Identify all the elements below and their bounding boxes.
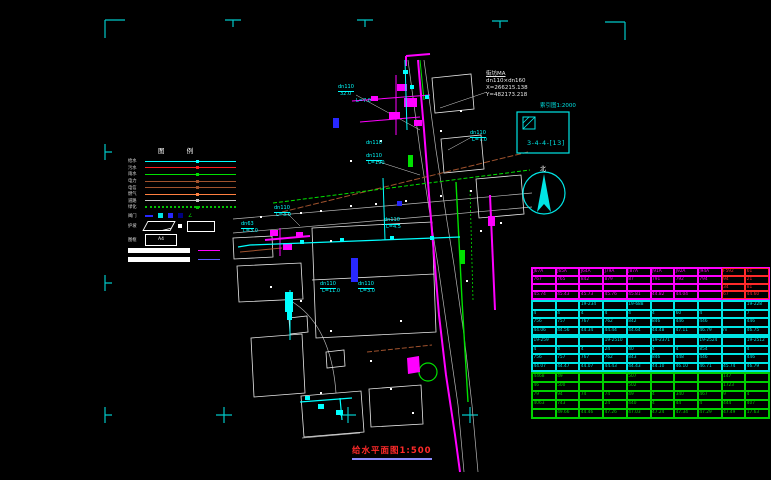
survey-cell: 446 <box>745 318 769 327</box>
tick-left-1 <box>105 144 112 160</box>
detail-reference: 3-4-4-[13] <box>527 139 565 147</box>
survey-cell <box>698 373 722 382</box>
survey-cell: 44.46 <box>579 409 603 418</box>
survey-cell: 44.44 <box>603 327 627 336</box>
survey-cell: J92A <box>674 268 698 276</box>
hydrant-icon <box>158 213 163 218</box>
legend-line-rows: 给水污水雨水电力电信燃气道路绿化 <box>128 158 236 211</box>
legend-slope-row: 护坡 <box>128 221 236 232</box>
survey-cell: 756 <box>532 354 556 363</box>
survey-cell: 45.74 <box>532 291 556 299</box>
legend-row-label: 燃气 <box>128 191 145 197</box>
legend-row-tick <box>196 166 199 169</box>
survey-cell <box>722 318 746 327</box>
legend-row-label: 污水 <box>128 165 145 171</box>
survey-cell: 44 <box>674 400 698 409</box>
survey-cell: 45.73 <box>579 291 603 299</box>
survey-cell: 502 <box>627 382 651 391</box>
survey-cell: 446 <box>698 354 722 363</box>
survey-cell: 4 <box>627 310 651 319</box>
pipe-label: L=3.0 <box>243 229 258 234</box>
survey-cell <box>745 373 769 382</box>
survey-cell: J79A <box>603 268 627 276</box>
survey-cell: 44.60 <box>745 291 769 299</box>
tick-left-2 <box>105 275 112 291</box>
survey-cell: 879 <box>603 276 627 284</box>
survey-cell: 74 <box>579 391 603 400</box>
survey-cell: 4 <box>532 310 556 319</box>
survey-cell: 4 <box>698 310 722 319</box>
survey-cell: 767 <box>532 276 556 284</box>
tick-top-1 <box>225 20 241 27</box>
survey-cell: 47.26 <box>603 409 627 418</box>
survey-cell: 446 <box>698 318 722 327</box>
survey-cell: 44.10 <box>651 363 675 372</box>
legend-symbols-label: 阀门 <box>128 213 145 219</box>
survey-cell: 44.56 <box>556 327 580 336</box>
survey-cell: J64A <box>579 268 603 276</box>
tree-icon: ∠ <box>188 213 192 219</box>
valve-icon <box>145 215 153 217</box>
survey-cell <box>579 382 603 391</box>
survey-cell: 4 <box>651 391 675 400</box>
callout-line: 街坊MA <box>486 71 528 78</box>
legend-row-label: 绿化 <box>128 204 145 210</box>
survey-cell: 46.79 <box>698 327 722 336</box>
survey-cell: 19-2510 <box>603 337 627 346</box>
survey-table-section: 4468495071474650050217237994747449434046… <box>531 372 770 419</box>
survey-cell: 47.03 <box>627 409 651 418</box>
survey-cell: 792 <box>674 276 698 284</box>
survey-cell: 4 <box>556 310 580 319</box>
survey-cell: 45.81 <box>627 291 651 299</box>
survey-cell: 45.76 <box>603 291 627 299</box>
legend-title: 图 例 <box>158 145 236 155</box>
survey-cell: 47.11 <box>674 327 698 336</box>
survey-cell: 7 <box>745 310 769 319</box>
survey-cell: 87 <box>627 276 651 284</box>
legend-row: 雨水 <box>128 171 236 178</box>
survey-cell: 49 <box>627 391 651 400</box>
survey-cell: 44.82 <box>651 291 675 299</box>
survey-cell: 47.49 <box>722 409 746 418</box>
survey-cell: 45.74 <box>722 363 746 372</box>
survey-cell <box>698 382 722 391</box>
survey-cell: 846 <box>651 318 675 327</box>
legend-row-line <box>145 200 236 201</box>
survey-cell <box>651 284 675 292</box>
survey-cell: 44.43 <box>627 363 651 372</box>
survey-cell: 4 <box>556 346 580 355</box>
legend: 图 例 给水污水雨水电力电信燃气道路绿化 阀门 ∠ 护坡 图框 A4 <box>128 145 236 264</box>
survey-cell: J91A <box>651 268 675 276</box>
survey-table-section: J67AJ65AJ64AJ79AJ87AJ91AJ92AJ94AF5926176… <box>531 267 770 300</box>
survey-cell: 19-234 <box>579 301 603 310</box>
survey-cell <box>722 346 746 355</box>
survey-cell: 743 <box>556 400 580 409</box>
survey-cell: 507 <box>627 373 651 382</box>
survey-cell: 4 <box>579 310 603 319</box>
survey-cell: 4 <box>651 310 675 319</box>
survey-cell <box>556 337 580 346</box>
legend-row-line <box>145 167 236 168</box>
legend-row: 道路 <box>128 198 236 205</box>
planned-drain-line <box>198 259 220 260</box>
legend-row-tick <box>196 180 199 183</box>
legend-row-line <box>145 181 236 182</box>
survey-cell <box>722 354 746 363</box>
survey-cell <box>722 337 746 346</box>
survey-cell: 4 <box>651 400 675 409</box>
road-bar-symbol-2 <box>128 257 190 262</box>
survey-cell: 47.24 <box>651 409 675 418</box>
survey-cell: 46.75 <box>745 327 769 336</box>
pump-block <box>407 356 420 374</box>
survey-cell: 762 <box>603 318 627 327</box>
slope-symbol <box>142 221 175 231</box>
legend-row-tick <box>196 160 199 163</box>
power-telecom-lines <box>240 152 528 352</box>
survey-cell <box>532 301 556 310</box>
survey-cell: 44.34 <box>579 327 603 336</box>
survey-cell <box>603 373 627 382</box>
a4-frame-symbol: A4 <box>145 234 177 246</box>
cad-canvas[interactable]: 北 街坊MA dn110×dn160 X=266215.138 Y=482173… <box>0 0 771 480</box>
survey-cell: 4 <box>603 310 627 319</box>
survey-cell <box>532 284 556 292</box>
survey-cell: 446 <box>674 318 698 327</box>
survey-cell <box>674 373 698 382</box>
survey-cell: 4 <box>745 346 769 355</box>
survey-cell: J65A <box>556 268 580 276</box>
survey-cell: 767 <box>579 354 603 363</box>
survey-cell: J87A <box>627 268 651 276</box>
north-label: 北 <box>540 164 546 173</box>
survey-cell: 757 <box>556 354 580 363</box>
legend-row-label: 电力 <box>128 178 145 184</box>
tick-top-left <box>105 20 125 38</box>
pipe-label: L=7.0 <box>472 138 487 143</box>
survey-table: J67AJ65AJ64AJ79AJ87AJ91AJ92AJ94AF5926176… <box>531 267 770 419</box>
survey-cell: 94 <box>722 276 746 284</box>
survey-cell <box>579 337 603 346</box>
survey-cell: 757 <box>556 318 580 327</box>
survey-cell <box>674 382 698 391</box>
pipe-label: L=4.5 <box>386 225 401 230</box>
survey-cell <box>579 373 603 382</box>
coordinate-callout: 街坊MA dn110×dn160 X=266215.138 Y=482173.2… <box>486 71 528 99</box>
survey-cell <box>698 291 722 299</box>
legend-row-label: 道路 <box>128 198 145 204</box>
survey-cell: 407 <box>745 400 769 409</box>
survey-cell: 67 <box>722 291 746 299</box>
survey-cell: 19-259 <box>532 337 556 346</box>
survey-cell: 846 <box>651 354 675 363</box>
survey-cell <box>698 284 722 292</box>
survey-cell: 74 <box>603 391 627 400</box>
legend-frame-label: 图框 <box>128 237 145 243</box>
survey-cell: 4 <box>651 346 675 355</box>
survey-cell <box>674 301 698 310</box>
survey-cell: 44.48 <box>651 327 675 336</box>
survey-cell: 843 <box>627 354 651 363</box>
survey-cell <box>603 301 627 310</box>
survey-cell: 4063 <box>532 400 556 409</box>
callout-line: dn110×dn160 <box>486 78 528 85</box>
survey-cell: 767 <box>579 318 603 327</box>
survey-cell: 24 <box>603 400 627 409</box>
survey-cell: 791 <box>651 276 675 284</box>
tick-bottom-3 <box>462 407 478 423</box>
survey-cell <box>651 373 675 382</box>
survey-cell <box>579 284 603 292</box>
dot-symbol <box>178 224 182 228</box>
survey-cell: 467 <box>698 391 722 400</box>
survey-cell: 46 <box>532 382 556 391</box>
pipe-label: 32.0 <box>340 92 351 97</box>
survey-cell: 79 <box>532 391 556 400</box>
survey-cell: 854 <box>698 346 722 355</box>
survey-cell: 24 <box>603 346 627 355</box>
pipe-label: L=3.0 <box>276 213 291 218</box>
legend-row: 电信 <box>128 184 236 191</box>
survey-cell <box>698 301 722 310</box>
survey-cell: 61 <box>745 268 769 276</box>
tick-top-right <box>605 22 625 40</box>
index-scale-label: 索引图1:2000 <box>540 101 576 109</box>
survey-cell <box>674 284 698 292</box>
survey-cell: 4 <box>698 400 722 409</box>
building-outlines <box>233 74 524 437</box>
tick-top-2 <box>357 20 373 27</box>
survey-cell: 842 <box>579 276 603 284</box>
box-symbol <box>187 221 215 232</box>
survey-cell <box>603 382 627 391</box>
survey-cell: 17.63 <box>745 409 769 418</box>
legend-row: 燃气 <box>128 191 236 198</box>
survey-cell <box>745 382 769 391</box>
survey-cell: 842 <box>627 318 651 327</box>
survey-cell: 46.10 <box>674 363 698 372</box>
survey-cell: 4 <box>674 346 698 355</box>
survey-cell: 44.06 <box>532 327 556 336</box>
tree-circle <box>419 363 437 381</box>
legend-row-tick <box>196 199 199 202</box>
road-lines <box>233 60 532 472</box>
tick-top-3 <box>492 21 508 28</box>
survey-cell <box>556 301 580 310</box>
survey-cell: F592 <box>722 268 746 276</box>
legend-bars <box>128 246 236 264</box>
survey-cell: 34 <box>722 284 746 292</box>
pipe-label: L=11.0 <box>322 289 340 294</box>
survey-cell: J67A <box>532 268 556 276</box>
survey-cell <box>722 310 746 319</box>
survey-cell <box>722 301 746 310</box>
survey-cell: 49.66 <box>556 409 580 418</box>
survey-cell <box>627 284 651 292</box>
pipe-label: L=3.0 <box>360 289 375 294</box>
survey-cell <box>579 400 603 409</box>
survey-cell <box>627 337 651 346</box>
legend-row: 电力 <box>128 178 236 185</box>
legend-row-line <box>145 206 236 208</box>
survey-cell: 19-2524 <box>698 337 722 346</box>
survey-cell: 47.29 <box>698 409 722 418</box>
survey-cell: 19-228 <box>745 301 769 310</box>
survey-table-section: 19-25919-251019-237119-252419-2512444244… <box>531 336 770 372</box>
legend-row-tick <box>196 186 199 189</box>
tick-bottom-1 <box>216 407 232 423</box>
main-pipe <box>418 60 460 472</box>
survey-cell <box>651 382 675 391</box>
survey-cell: 4 <box>579 346 603 355</box>
legend-row-line <box>145 161 236 162</box>
survey-cell: 46.71 <box>698 363 722 372</box>
survey-cell: 46.79 <box>745 363 769 372</box>
legend-row-line <box>145 194 236 195</box>
survey-cell: 47.34 <box>674 409 698 418</box>
survey-cell: 794 <box>698 276 722 284</box>
survey-cell: 1723 <box>722 382 746 391</box>
survey-cell: 19-2512 <box>745 337 769 346</box>
survey-cell: 44.43 <box>603 363 627 372</box>
survey-cell: 44.64 <box>627 327 651 336</box>
survey-cell: 444 <box>722 400 746 409</box>
survey-cell <box>674 337 698 346</box>
legend-row-label: 雨水 <box>128 171 145 177</box>
survey-cell: 147 <box>722 373 746 382</box>
survey-cell: 440 <box>627 400 651 409</box>
pipe-label: L=7.0 <box>356 99 371 104</box>
survey-cell: m <box>722 327 746 336</box>
survey-cell: 44.07 <box>532 363 556 372</box>
survey-cell: 340 <box>674 391 698 400</box>
legend-symbols-row: 阀门 ∠ <box>128 213 236 219</box>
survey-cell: 446 <box>745 354 769 363</box>
survey-cell: 756 <box>532 318 556 327</box>
legend-row: 绿化 <box>128 204 236 211</box>
survey-cell: 4468 <box>532 373 556 382</box>
planned-water-line <box>198 250 220 251</box>
survey-cell: 44.47 <box>556 363 580 372</box>
callout-line: Y=482173.218 <box>486 92 528 99</box>
pipe-label: L=190 <box>368 161 385 166</box>
survey-cell: 4 <box>745 391 769 400</box>
manhole-icon <box>168 213 173 218</box>
survey-cell <box>603 284 627 292</box>
survey-cell: 45.43 <box>556 291 580 299</box>
survey-cell: 49 <box>556 373 580 382</box>
survey-cell: 19-688 <box>627 301 651 310</box>
legend-frame-row: 图框 A4 <box>128 234 236 246</box>
survey-cell: 4 <box>532 346 556 355</box>
callout-line: X=266215.138 <box>486 85 528 92</box>
gate-icon <box>178 213 183 218</box>
legend-row-tick <box>196 173 199 176</box>
survey-cell <box>651 301 675 310</box>
survey-cell: 81 <box>745 284 769 292</box>
legend-row-label: 给水 <box>128 158 145 164</box>
survey-cell: 762 <box>603 354 627 363</box>
legend-row-line <box>145 187 236 188</box>
pipe-label: dn110 <box>366 141 382 146</box>
survey-cell: 765 <box>556 276 580 284</box>
tick-bottom-left <box>105 407 112 423</box>
survey-cell: 448 <box>674 354 698 363</box>
survey-cell: 94 <box>556 391 580 400</box>
survey-cell: 40 <box>627 346 651 355</box>
legend-row: 污水 <box>128 165 236 172</box>
survey-cell <box>532 409 556 418</box>
survey-cell: 44.07 <box>579 363 603 372</box>
legend-row-line <box>145 174 236 175</box>
legend-row-tick <box>196 206 199 209</box>
survey-cell: 19-2371 <box>651 337 675 346</box>
survey-cell: 500 <box>556 382 580 391</box>
survey-table-section: 19-23419-68819-2284444446047756757767762… <box>531 300 770 336</box>
survey-cell: J94A <box>698 268 722 276</box>
legend-row: 给水 <box>128 158 236 165</box>
survey-cell: 21 <box>745 276 769 284</box>
legend-row-label: 电信 <box>128 185 145 191</box>
north-needle <box>537 174 551 212</box>
survey-cell: 9 <box>722 391 746 400</box>
road-bar-symbol <box>128 248 190 253</box>
survey-cell: 44.04 <box>674 291 698 299</box>
survey-cell: 60 <box>674 310 698 319</box>
sheet-title: 给水平面图1:500 <box>352 444 432 460</box>
legend-row-tick <box>196 193 199 196</box>
survey-cell <box>556 284 580 292</box>
